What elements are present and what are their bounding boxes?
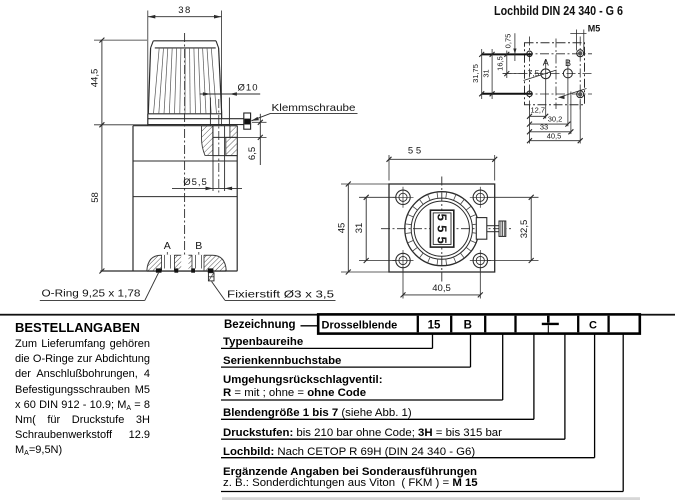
svg-text:5 5: 5 5	[408, 146, 421, 157]
svg-text:5: 5	[435, 225, 450, 232]
svg-text:44,5: 44,5	[90, 69, 101, 88]
svg-text:31: 31	[354, 223, 365, 234]
svg-text:58: 58	[90, 192, 101, 203]
svg-text:16,5: 16,5	[496, 56, 505, 71]
svg-text:15: 15	[428, 319, 441, 331]
svg-text:Lochbild DIN 24 340 - G 6: Lochbild DIN 24 340 - G 6	[494, 3, 623, 18]
svg-text:32,5: 32,5	[519, 220, 530, 239]
svg-text:30,2: 30,2	[548, 115, 563, 124]
svg-text:33: 33	[540, 123, 548, 132]
svg-text:40,5: 40,5	[432, 283, 451, 294]
svg-text:B: B	[565, 58, 571, 68]
svg-text:Ø5,5: Ø5,5	[183, 177, 208, 188]
svg-text:0,75: 0,75	[504, 34, 513, 49]
svg-text:40,5: 40,5	[547, 131, 562, 140]
svg-text:Fixierstift Ø3 x 3,5: Fixierstift Ø3 x 3,5	[227, 289, 334, 301]
svg-text:6,5: 6,5	[247, 147, 258, 160]
svg-text:A: A	[543, 58, 549, 68]
svg-text:31,75: 31,75	[471, 64, 480, 83]
svg-text:O-Ring 9,25 x 1,78: O-Ring 9,25 x 1,78	[42, 288, 141, 300]
svg-text:45: 45	[337, 223, 348, 234]
svg-text:38: 38	[178, 5, 192, 16]
svg-text:31: 31	[481, 69, 490, 77]
svg-text:M5: M5	[588, 24, 601, 34]
svg-text:5: 5	[435, 214, 450, 221]
svg-text:Ø10: Ø10	[238, 83, 259, 94]
svg-text:7,5: 7,5	[528, 68, 540, 78]
svg-text:B: B	[464, 319, 472, 331]
svg-text:Klemmschraube: Klemmschraube	[272, 102, 356, 114]
svg-text:5: 5	[435, 236, 450, 243]
svg-text:A: A	[164, 240, 171, 252]
svg-text:B: B	[195, 240, 202, 252]
svg-text:C: C	[589, 320, 597, 332]
svg-text:Drosselblende: Drosselblende	[322, 320, 398, 332]
svg-text:12,7: 12,7	[530, 106, 545, 115]
